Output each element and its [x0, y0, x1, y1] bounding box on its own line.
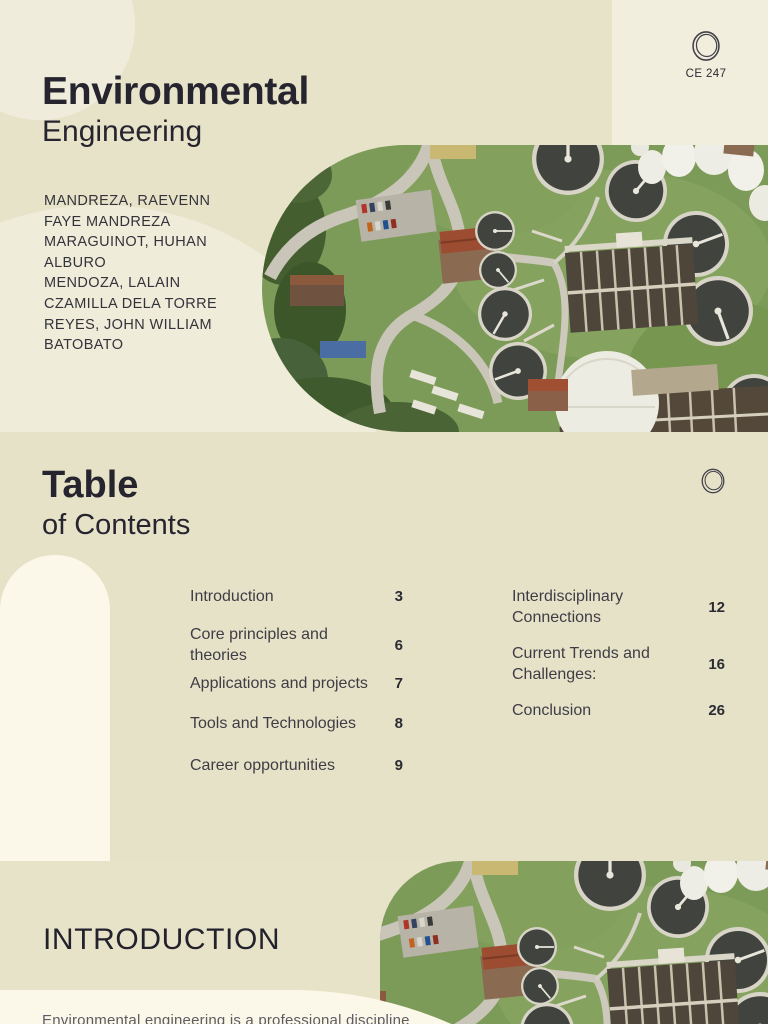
toc-item-page: 8: [377, 715, 403, 732]
author-line: CZAMILLA DELA TORRE: [44, 294, 217, 315]
toc-item-label: Tools and Technologies: [190, 713, 356, 734]
deck-title-line2: Engineering: [42, 117, 309, 147]
toc-item-label: Core principles and theories: [190, 624, 370, 666]
document-page: CE 247 Environmental Engineering MANDREZ…: [0, 0, 768, 1024]
toc-title: Table of Contents: [42, 466, 190, 540]
toc-item: Tools and Technologies 8: [190, 713, 403, 734]
author-line: MANDREZA, RAEVENN: [44, 191, 217, 212]
deck-title: Environmental Engineering: [42, 72, 309, 147]
toc-item: Current Trends and Challenges: 16: [512, 643, 725, 685]
author-line: ALBURO: [44, 253, 217, 274]
toc-item-label: Introduction: [190, 586, 274, 607]
toc-item-page: 6: [377, 637, 403, 654]
toc-item: Core principles and theories 6: [190, 624, 403, 666]
toc-item-label: Career opportunities: [190, 755, 335, 776]
toc-item: Introduction 3: [190, 586, 403, 607]
section-heading: INTRODUCTION: [43, 923, 280, 957]
ring-logo-icon: [698, 466, 728, 496]
toc-item: Career opportunities 9: [190, 755, 403, 776]
toc-item-page: 7: [377, 675, 403, 692]
toc-item-page: 26: [699, 702, 725, 719]
toc-item-page: 3: [377, 588, 403, 605]
toc-item-label: Conclusion: [512, 700, 591, 721]
aerial-photo: [262, 145, 768, 432]
author-line: MENDOZA, LALAIN: [44, 273, 217, 294]
toc-column-right: Interdisciplinary Connections 12 Current…: [512, 586, 725, 736]
toc-item-page: 12: [699, 599, 725, 616]
author-line: REYES, JOHN WILLIAM: [44, 315, 217, 336]
slide-introduction: INTRODUCTION Environmental engineering i…: [0, 861, 768, 1024]
toc-item-page: 9: [377, 757, 403, 774]
toc-item: Applications and projects 7: [190, 673, 403, 694]
toc-item: Conclusion 26: [512, 700, 725, 721]
decorative-arch: [0, 555, 110, 861]
author-line: BATOBATO: [44, 335, 217, 356]
ring-logo-icon: [688, 28, 724, 64]
toc-title-line1: Table: [42, 466, 190, 504]
toc-item-label: Interdisciplinary Connections: [512, 586, 672, 628]
aerial-photo: [380, 861, 768, 1024]
course-code: CE 247: [668, 68, 744, 80]
slide-title: CE 247 Environmental Engineering MANDREZ…: [0, 0, 768, 432]
body-text-preview: Environmental engineering is a professio…: [42, 1012, 410, 1024]
toc-item-label: Applications and projects: [190, 673, 368, 694]
author-line: FAYE MANDREZA: [44, 212, 217, 233]
toc-item-page: 16: [699, 656, 725, 673]
toc-item: Interdisciplinary Connections 12: [512, 586, 725, 628]
authors-list: MANDREZA, RAEVENN FAYE MANDREZA MARAGUIN…: [44, 191, 217, 356]
author-line: MARAGUINOT, HUHAN: [44, 232, 217, 253]
toc-title-line2: of Contents: [42, 511, 190, 540]
slide-toc: Table of Contents Introduction 3 Core pr…: [0, 432, 768, 861]
deck-title-line1: Environmental: [42, 72, 309, 111]
toc-column-left: Introduction 3 Core principles and theor…: [190, 586, 403, 776]
toc-item-label: Current Trends and Challenges:: [512, 643, 672, 685]
